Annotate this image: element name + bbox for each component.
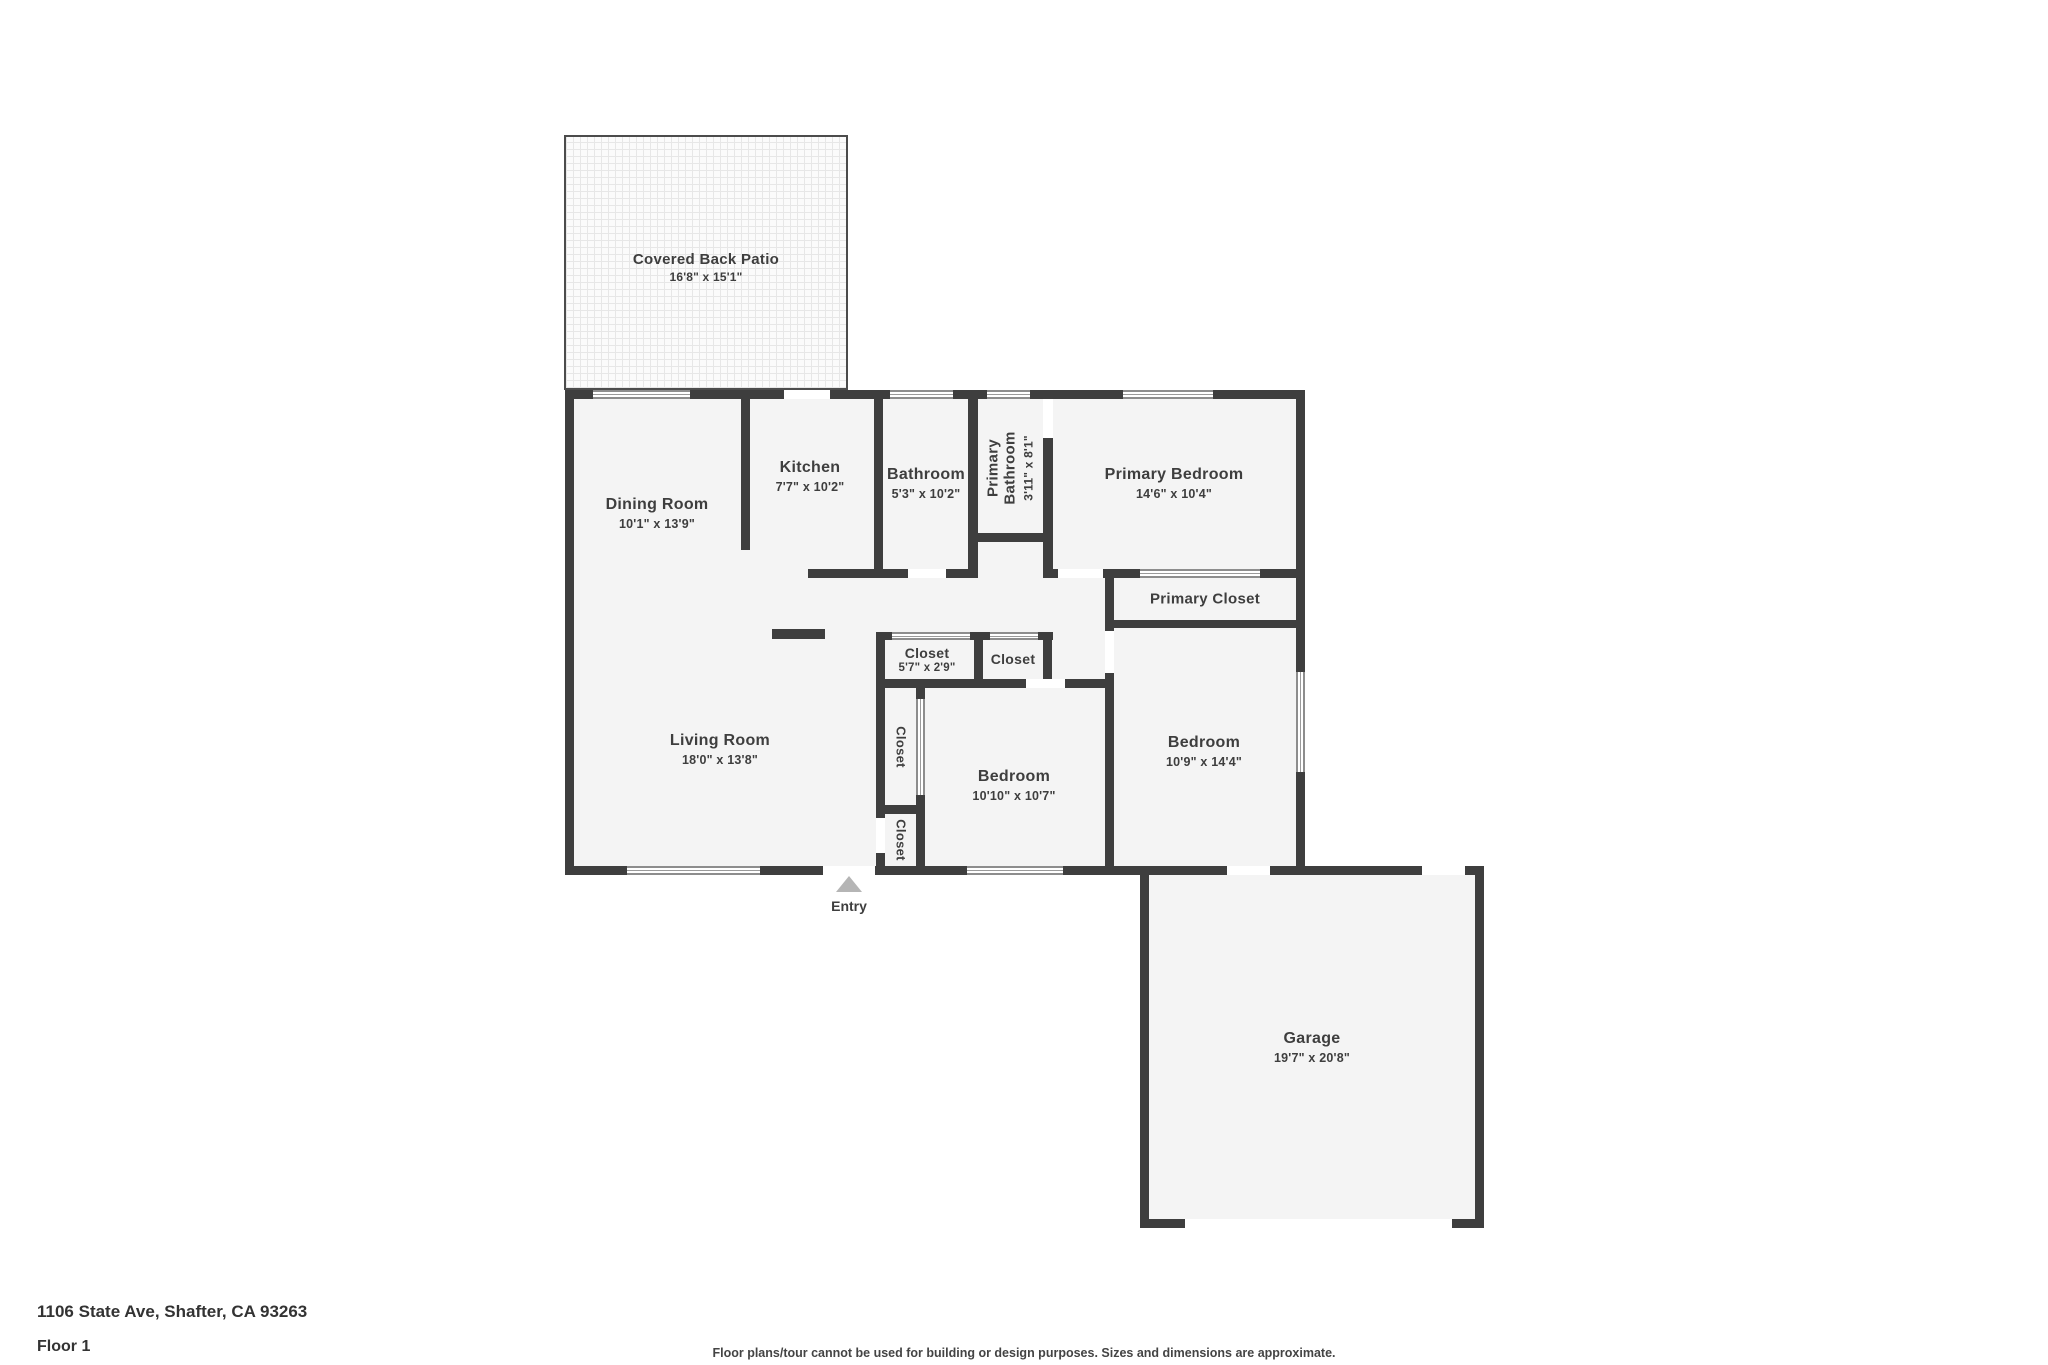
wall <box>968 533 1053 542</box>
wall <box>772 629 825 639</box>
room-label-bathroom: Bathroom 5'3" x 10'2" <box>887 466 965 502</box>
wall <box>741 399 750 550</box>
wall <box>876 679 1026 688</box>
entry-opening <box>823 866 875 875</box>
wall <box>953 390 987 399</box>
garage-door-opening <box>1227 866 1270 875</box>
wall <box>565 390 574 875</box>
door-opening <box>1026 679 1065 688</box>
wall <box>1043 438 1053 578</box>
window <box>890 390 953 399</box>
wall <box>1260 569 1305 578</box>
window <box>593 390 690 399</box>
window <box>967 866 1063 875</box>
room-label-dining: Dining Room 10'1" x 13'9" <box>606 496 709 532</box>
disclaimer-text: Floor plans/tour cannot be used for buil… <box>0 1346 2048 1360</box>
room-label-bedroom-mid: Bedroom 10'10" x 10'7" <box>972 768 1055 804</box>
door-opening <box>876 818 885 853</box>
room-label-closet-a: Closet 5'7" x 2'9" <box>899 645 956 675</box>
wall <box>946 569 978 578</box>
room-label-primary-closet: Primary Closet <box>1150 590 1260 607</box>
wall <box>1296 390 1305 672</box>
wall <box>830 390 890 399</box>
room-label-kitchen: Kitchen 7'7" x 10'2" <box>776 459 845 495</box>
wall <box>1065 679 1114 688</box>
garage-vehicle-opening <box>1185 1219 1452 1228</box>
room-label-primary-bathroom: Primary Bathroom 3'11" x 8'1" <box>984 420 1035 516</box>
wall <box>1063 866 1227 875</box>
window <box>1123 390 1213 399</box>
address-text: 1106 State Ave, Shafter, CA 93263 <box>37 1302 307 1322</box>
wall <box>760 866 823 875</box>
window <box>627 866 760 875</box>
wall <box>1213 390 1305 399</box>
closet-slider-door <box>1140 569 1260 578</box>
wall <box>970 632 990 640</box>
room-label-garage: Garage 19'7" x 20'8" <box>1274 1030 1350 1066</box>
door-opening <box>1422 866 1465 875</box>
wall <box>565 866 627 875</box>
entry-label: Entry <box>831 898 867 914</box>
room-label-bedroom-right: Bedroom 10'9" x 14'4" <box>1166 734 1242 770</box>
room-label-patio: Covered Back Patio 16'8" x 15'1" <box>633 251 779 285</box>
door-opening <box>1105 631 1114 673</box>
wall <box>1043 632 1052 679</box>
wall <box>1296 772 1305 875</box>
room-label-primary-bedroom: Primary Bedroom 14'6" x 10'4" <box>1105 466 1244 502</box>
window <box>987 390 1030 399</box>
wall <box>876 805 925 814</box>
wall <box>876 853 885 866</box>
window <box>1296 672 1305 772</box>
wall <box>916 688 925 699</box>
entry-arrow-icon <box>836 876 862 892</box>
closet-slider-door <box>916 699 925 795</box>
room-label-closet-tall: Closet <box>893 726 908 768</box>
room-label-closet-entry: Closet <box>893 819 908 861</box>
wall <box>1105 620 1305 628</box>
wall <box>1270 866 1422 875</box>
wall <box>875 866 967 875</box>
wall <box>1030 390 1123 399</box>
door-opening <box>784 390 830 399</box>
wall <box>1140 875 1149 1219</box>
wall <box>1105 673 1114 875</box>
wall <box>1140 1219 1185 1228</box>
door-opening <box>1043 399 1053 438</box>
wall <box>876 632 885 818</box>
wall <box>1043 569 1058 578</box>
wall <box>874 399 883 578</box>
wall <box>974 640 983 679</box>
wall <box>968 399 978 578</box>
wall <box>690 390 784 399</box>
floor-plan: Covered Back Patio 16'8" x 15'1" Dining … <box>0 0 2048 1365</box>
closet-slider-door <box>892 632 970 640</box>
door-opening <box>908 569 946 578</box>
wall <box>1475 866 1484 1228</box>
room-label-closet-b: Closet <box>991 651 1036 667</box>
door-opening <box>1058 569 1103 578</box>
closet-slider-door <box>990 632 1038 640</box>
wall <box>808 569 908 578</box>
wall <box>1452 1219 1484 1228</box>
room-label-living: Living Room 18'0" x 13'8" <box>670 732 770 768</box>
